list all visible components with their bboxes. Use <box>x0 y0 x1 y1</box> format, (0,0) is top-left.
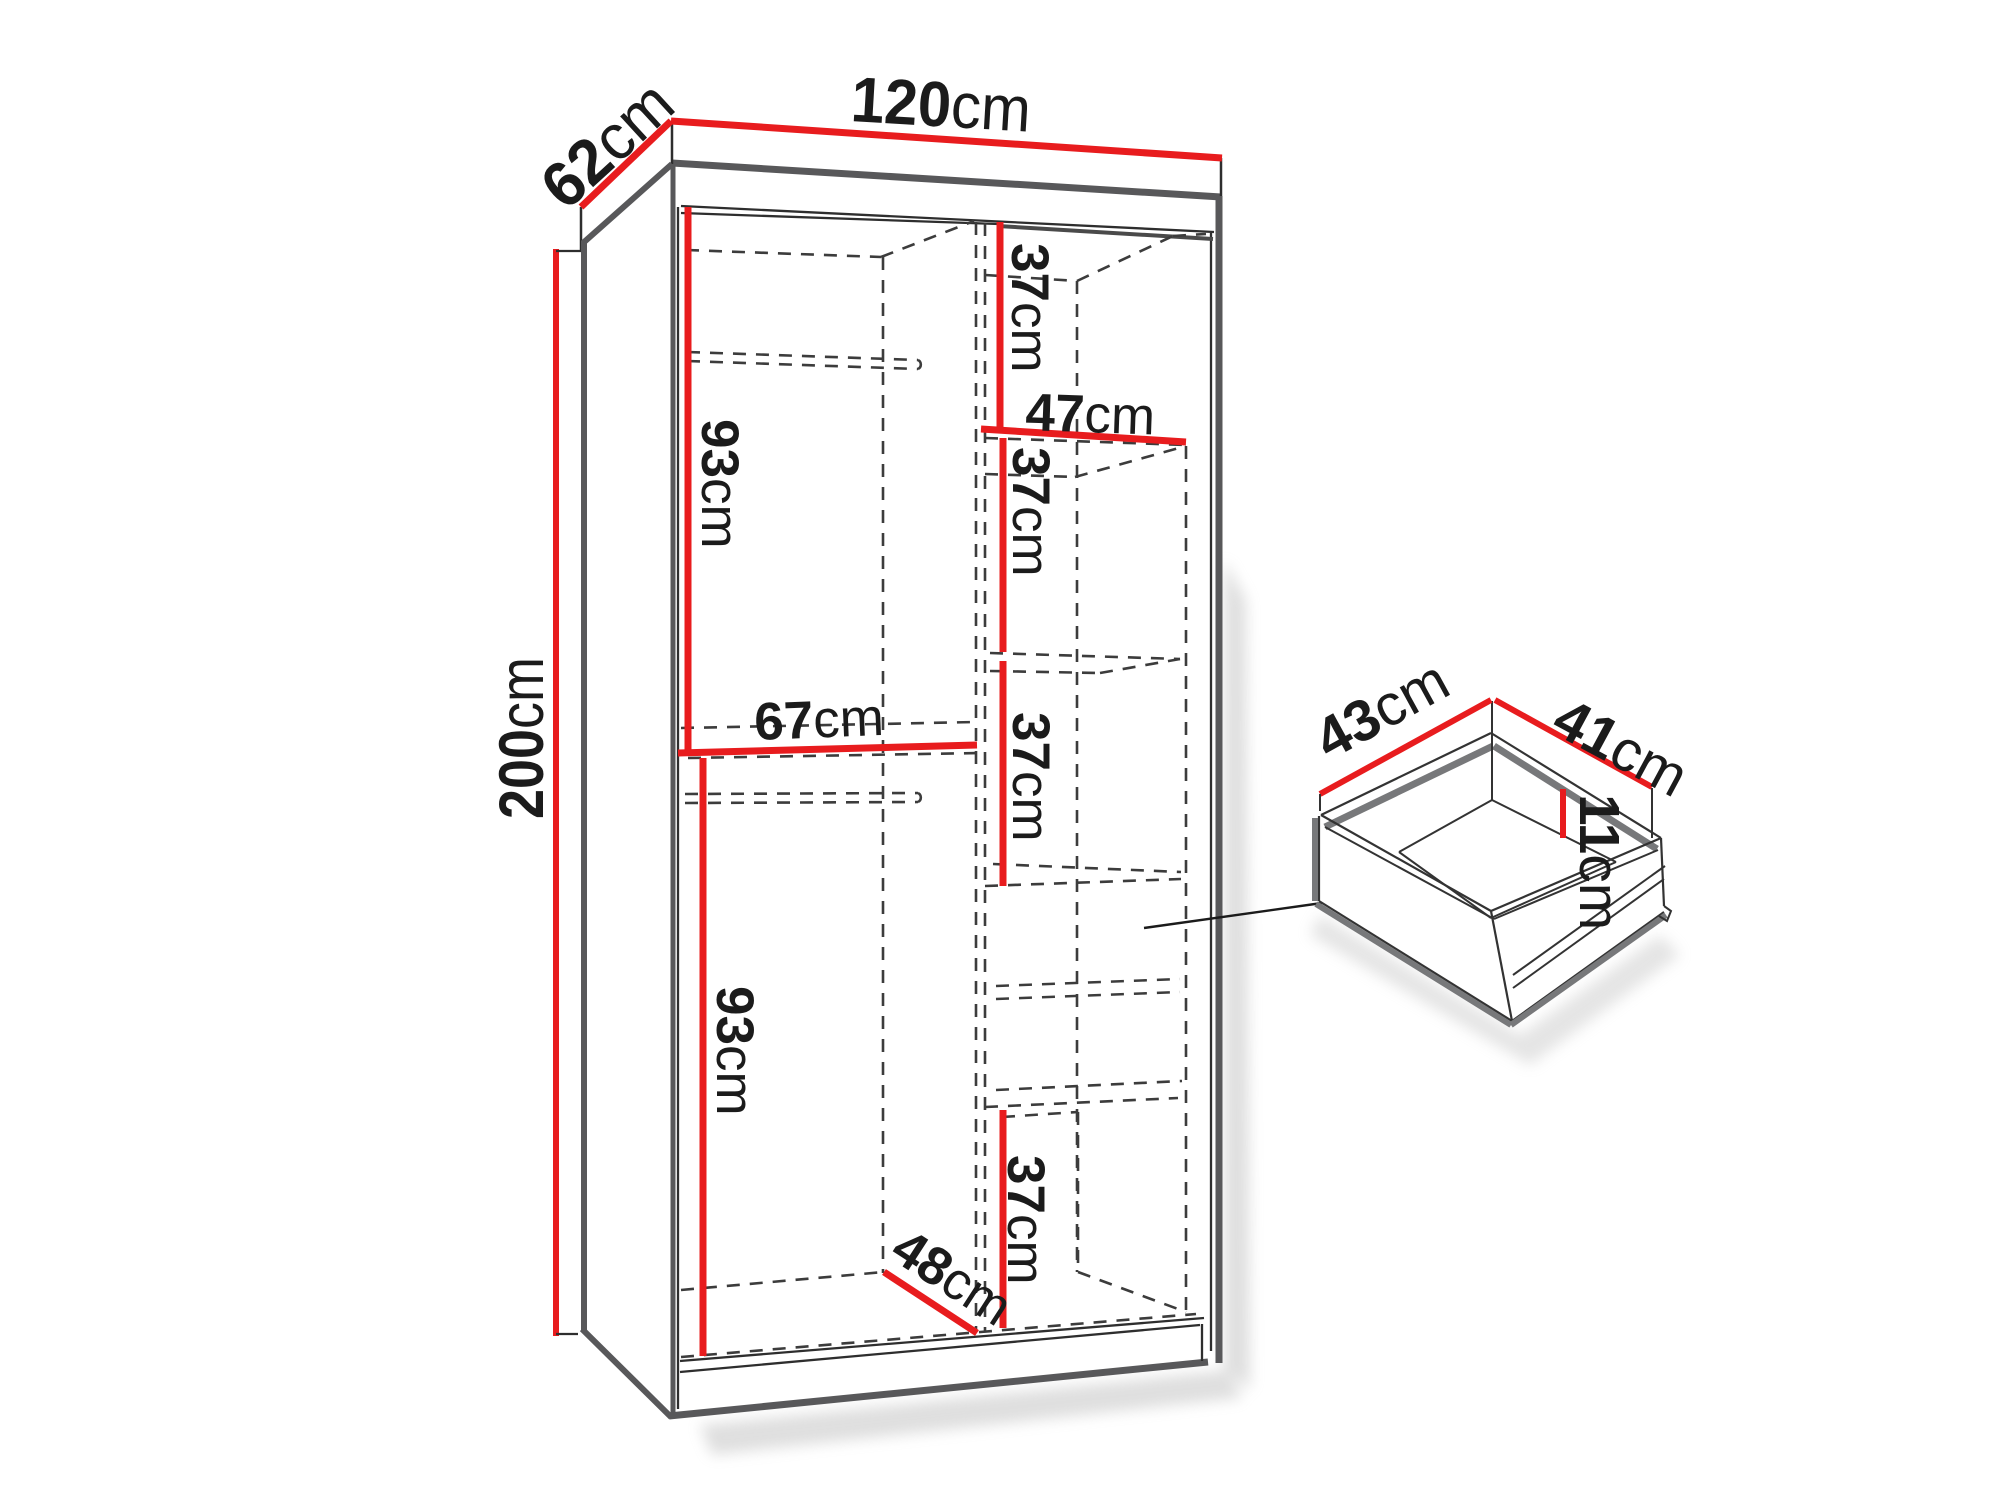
svg-text:120cm: 120cm <box>849 63 1033 146</box>
svg-text:11cm: 11cm <box>1567 794 1631 930</box>
svg-text:37cm: 37cm <box>1001 447 1060 577</box>
svg-text:67cm: 67cm <box>753 688 885 752</box>
svg-text:93cm: 93cm <box>705 986 764 1116</box>
svg-text:37cm: 37cm <box>996 1155 1055 1285</box>
svg-text:37cm: 37cm <box>1001 712 1060 842</box>
svg-text:93cm: 93cm <box>690 419 749 549</box>
svg-text:200cm: 200cm <box>487 657 557 819</box>
svg-text:37cm: 37cm <box>1000 243 1059 373</box>
svg-text:47cm: 47cm <box>1025 383 1157 446</box>
